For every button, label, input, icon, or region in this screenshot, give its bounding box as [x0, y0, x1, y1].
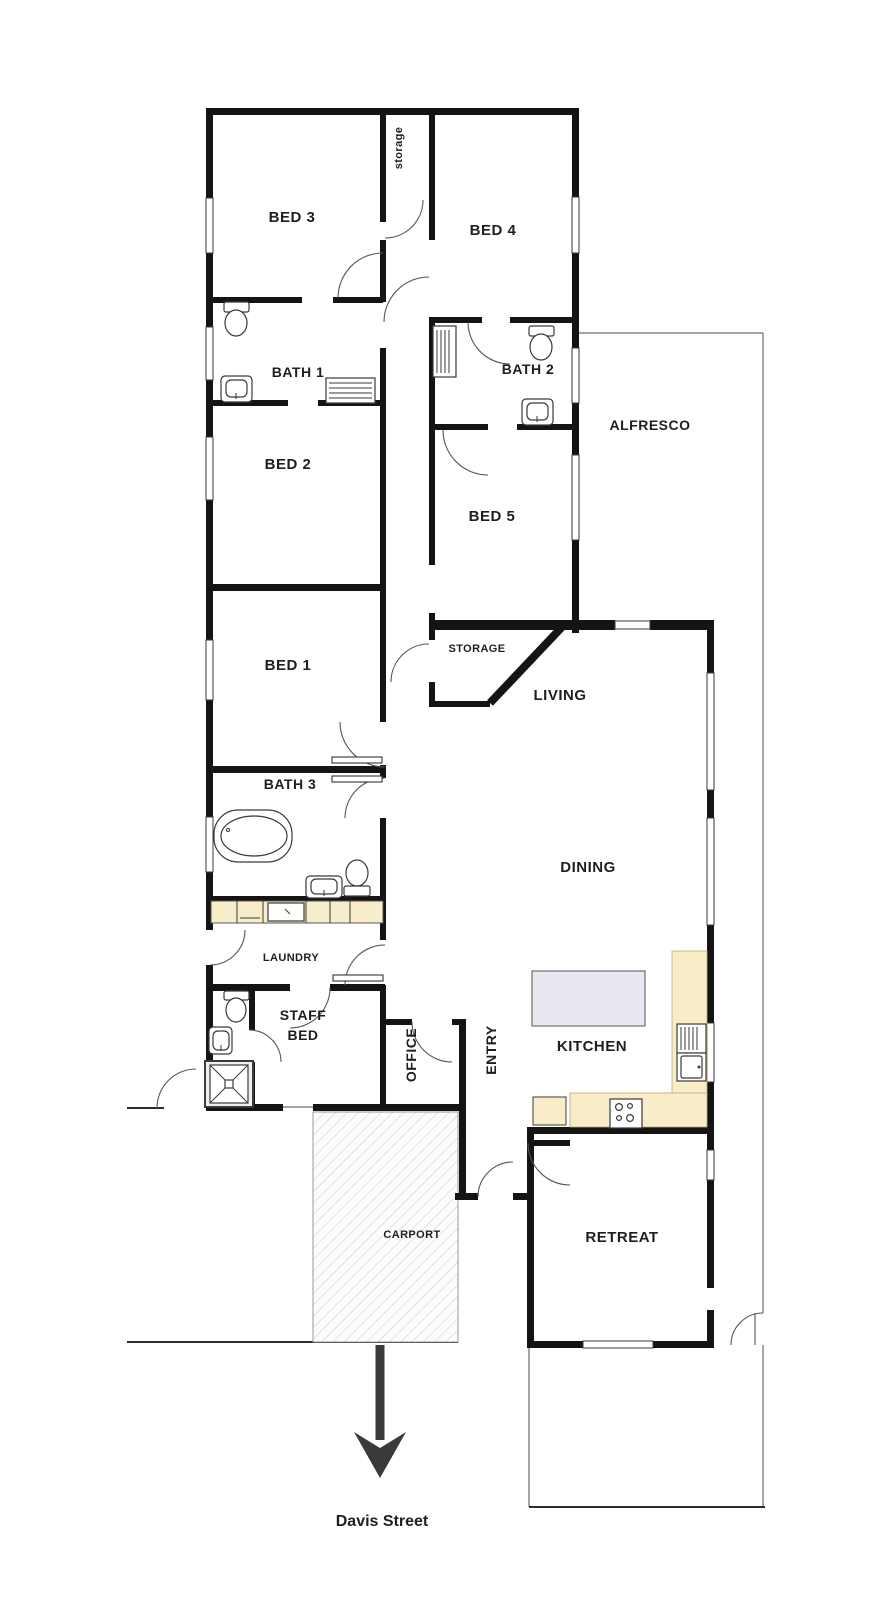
label-storage-small: storage — [393, 127, 405, 170]
toilet-icon — [529, 326, 554, 360]
label-bath3: BATH 3 — [264, 776, 317, 792]
label-bed3: BED 3 — [269, 209, 316, 226]
floor-plan-canvas: BED 3 storage BED 4 BATH 1 BATH 2 ALFRES… — [0, 0, 870, 1611]
label-bath1: BATH 1 — [272, 364, 325, 380]
kitchen-island — [532, 971, 645, 1026]
label-bed1: BED 1 — [265, 657, 312, 674]
sink-icon — [522, 399, 553, 425]
label-carport: CARPORT — [383, 1229, 440, 1241]
shower-rail-icon — [433, 326, 456, 377]
label-dining: DINING — [560, 859, 616, 876]
label-bath2: BATH 2 — [502, 361, 555, 377]
shower-rail-icon — [326, 378, 375, 403]
laundry-bench — [211, 901, 383, 923]
stove-icon — [610, 1099, 642, 1128]
label-kitchen: KITCHEN — [557, 1038, 627, 1055]
label-office: OFFICE — [403, 1028, 419, 1082]
shower-icon — [205, 1061, 253, 1107]
toilet-icon — [224, 302, 249, 336]
sink-icon — [221, 376, 252, 402]
sink-icon — [209, 1027, 232, 1054]
carport-area — [313, 1112, 458, 1342]
label-bed2: BED 2 — [265, 456, 312, 473]
label-retreat: RETREAT — [585, 1229, 658, 1246]
label-laundry: LAUNDRY — [263, 952, 319, 964]
toilet-icon — [344, 860, 370, 896]
kitchen-sink-icon — [677, 1024, 706, 1081]
bathtub-icon — [214, 810, 292, 862]
floor-plan: BED 3 storage BED 4 BATH 1 BATH 2 ALFRES… — [0, 0, 870, 1611]
kitchen-bench — [533, 1097, 566, 1125]
label-entry: ENTRY — [483, 1025, 499, 1075]
label-bed5: BED 5 — [469, 508, 516, 525]
label-storage-mid: STORAGE — [449, 643, 506, 655]
sink-icon — [306, 876, 342, 898]
label-street: Davis Street — [336, 1513, 429, 1530]
label-staff-bed-2: BED — [287, 1027, 318, 1043]
label-alfresco: ALFRESCO — [610, 417, 691, 433]
label-staff-bed-1: STAFF — [280, 1007, 327, 1023]
background — [0, 0, 870, 1611]
label-bed4: BED 4 — [470, 222, 517, 239]
label-living: LIVING — [533, 687, 586, 704]
